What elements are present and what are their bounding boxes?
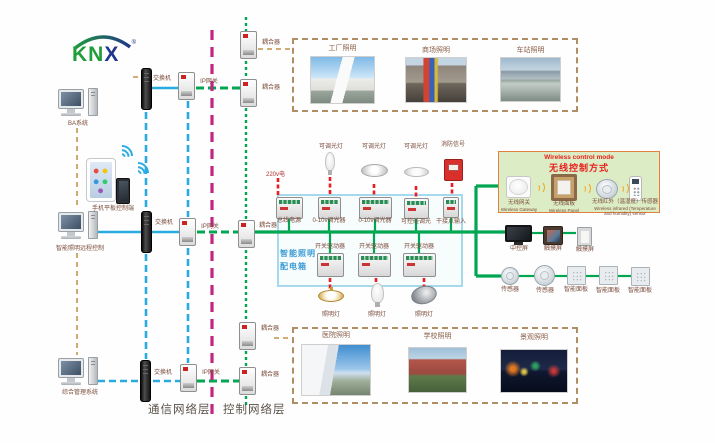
computer-ba-system bbox=[58, 88, 100, 120]
smart-panel-label: 智能面板 bbox=[618, 288, 662, 295]
ceiling-light-icon bbox=[318, 290, 344, 302]
wireless-panel-icon bbox=[551, 174, 577, 201]
line-coupler bbox=[239, 322, 256, 350]
photo-mall-lighting bbox=[405, 57, 467, 103]
switch-label: 交换机 bbox=[150, 76, 174, 83]
switch-label: 交换机 bbox=[151, 370, 175, 377]
wireless-gateway-label: 无线网关 Wireless Gateway bbox=[496, 200, 542, 212]
pc-tower-icon bbox=[88, 211, 98, 239]
photo-label-factory: 工厂照明 bbox=[310, 43, 375, 53]
phone-icon bbox=[116, 178, 130, 204]
fire-alarm-icon bbox=[444, 159, 463, 181]
coupler-label: 耦合器 bbox=[257, 372, 283, 379]
monitor-icon bbox=[58, 212, 84, 232]
bus-power-supply bbox=[276, 197, 303, 219]
ip-gateway-label: IP网关 bbox=[197, 224, 223, 231]
knx-logo-x: X bbox=[104, 43, 119, 66]
photo-landscape-lighting bbox=[500, 349, 568, 393]
tablet-icon bbox=[86, 158, 116, 202]
sensor-icon bbox=[501, 267, 519, 285]
pc-tower-icon bbox=[88, 357, 98, 385]
photo-label-mall: 商场照明 bbox=[405, 45, 467, 55]
photo-label-hospital: 医院照明 bbox=[301, 330, 371, 340]
scr-dimmer bbox=[404, 198, 429, 219]
ceiling-lamp-icon bbox=[404, 167, 429, 177]
switch-actuator bbox=[317, 253, 344, 277]
computer-management-system bbox=[58, 357, 100, 389]
communication-layer-label: 通信网络层 bbox=[148, 401, 211, 417]
photo-hospital-lighting bbox=[301, 344, 371, 396]
sensor-icon bbox=[534, 265, 555, 286]
touch-screen-label: 触摸屏 bbox=[568, 247, 602, 254]
bus-power-label: 总线电源 bbox=[267, 218, 311, 225]
photo-label-school: 学校照明 bbox=[408, 331, 467, 341]
rf-signal-icon bbox=[581, 182, 592, 195]
control-layer-label: 控制网络层 bbox=[223, 401, 286, 417]
ip-gateway bbox=[179, 218, 196, 246]
dimmer-0-10v-label: 0-10v调光器 bbox=[307, 218, 351, 225]
smart-panel-icon bbox=[631, 267, 650, 286]
smart-panel-icon bbox=[567, 266, 586, 285]
knx-system-diagram: KNX ® BA系统 手机平板控制端 智能照明远程控制 综合管理系统 交换机 交… bbox=[0, 0, 715, 443]
switch-actuator-label: 开关驱动器 bbox=[397, 244, 441, 251]
ethernet-switch bbox=[141, 211, 152, 253]
smart-panel-icon bbox=[599, 266, 618, 285]
line-coupler bbox=[239, 367, 256, 395]
touch-screen-icon bbox=[543, 226, 563, 245]
ip-gateway bbox=[178, 72, 195, 100]
wireless-gateway-icon bbox=[506, 176, 531, 198]
wireless-panel-label: 无线面板 Wireless Panel bbox=[542, 201, 586, 213]
dry-contact-input bbox=[443, 197, 459, 218]
pc-tower-icon bbox=[88, 88, 98, 116]
wireless-remote-icon bbox=[629, 176, 642, 201]
mobile-control-label: 手机平板控制端 bbox=[66, 206, 160, 213]
switch-actuator bbox=[403, 253, 436, 277]
dimmer-0-10v bbox=[318, 197, 341, 219]
ip-gateway-label: IP网关 bbox=[196, 79, 222, 86]
downlight-icon bbox=[361, 164, 388, 177]
dimmable-light-label: 可调光灯 bbox=[352, 144, 396, 151]
computer-ba-label: BA系统 bbox=[38, 121, 118, 128]
switch-label: 交换机 bbox=[152, 220, 176, 227]
touch-screen-label: 触摸屏 bbox=[533, 246, 573, 253]
line-coupler bbox=[240, 79, 257, 107]
computer-remote-control bbox=[58, 211, 100, 243]
ethernet-switch bbox=[140, 360, 151, 402]
remote-control-label: 智能照明远程控制 bbox=[20, 246, 140, 253]
wireless-title-zh: 无线控制方式 bbox=[498, 161, 660, 174]
dimmer-0-10v bbox=[359, 197, 392, 219]
led-bulb-icon bbox=[371, 283, 384, 303]
management-system-label: 综合管理系统 bbox=[30, 390, 130, 397]
photo-factory-lighting bbox=[310, 56, 375, 104]
knx-logo-kn: KN bbox=[72, 43, 104, 66]
touch-screen-icon bbox=[577, 227, 592, 246]
dimmer-0-10v-label: 0-10v调光器 bbox=[353, 218, 397, 225]
lamp-label: 照明灯 bbox=[309, 312, 353, 319]
switch-actuator-label: 开关驱动器 bbox=[352, 244, 396, 251]
wireless-sensor-icon bbox=[596, 179, 618, 199]
panel-name-line2: 配电箱 bbox=[280, 261, 307, 272]
line-coupler bbox=[240, 31, 257, 59]
photo-school-lighting bbox=[408, 347, 467, 393]
registered-mark: ® bbox=[132, 40, 136, 46]
power-220v-label: 220v电 bbox=[266, 169, 285, 178]
coupler-label: 耦合器 bbox=[258, 40, 284, 47]
switch-actuator-label: 开关驱动器 bbox=[308, 244, 352, 251]
ip-gateway bbox=[180, 364, 197, 392]
ip-gateway-label: IP网关 bbox=[198, 370, 224, 377]
coupler-label: 耦合器 bbox=[257, 326, 283, 333]
monitor-icon bbox=[58, 358, 84, 378]
dry-contact-label: 干接点输入 bbox=[429, 219, 473, 226]
fire-signal-label: 消防信号 bbox=[431, 142, 475, 149]
sensor-label: 传感器 bbox=[492, 287, 528, 294]
lamp-label: 照明灯 bbox=[355, 312, 399, 319]
line-coupler bbox=[238, 220, 255, 248]
photo-station-lighting bbox=[500, 57, 561, 102]
photo-label-station: 车站照明 bbox=[500, 45, 561, 55]
wireless-sensor-label: 无线红外（温湿度）传感器 Wireless infrared (Temperat… bbox=[592, 199, 658, 217]
lamp-label: 照明灯 bbox=[402, 312, 446, 319]
photo-label-landscape: 景观照明 bbox=[500, 332, 568, 342]
ethernet-switch bbox=[141, 68, 152, 110]
dimmable-bulb-icon bbox=[325, 152, 335, 171]
central-control-screen-icon bbox=[505, 225, 532, 242]
dimmable-light-label: 可调光灯 bbox=[309, 144, 353, 151]
knx-logo: KNX ® bbox=[70, 34, 134, 68]
switch-actuator bbox=[358, 253, 391, 277]
coupler-label: 耦合器 bbox=[258, 85, 284, 92]
wireless-title-en: Wireless control mode bbox=[498, 154, 660, 161]
monitor-icon bbox=[58, 89, 84, 109]
rf-signal-icon bbox=[535, 181, 546, 194]
